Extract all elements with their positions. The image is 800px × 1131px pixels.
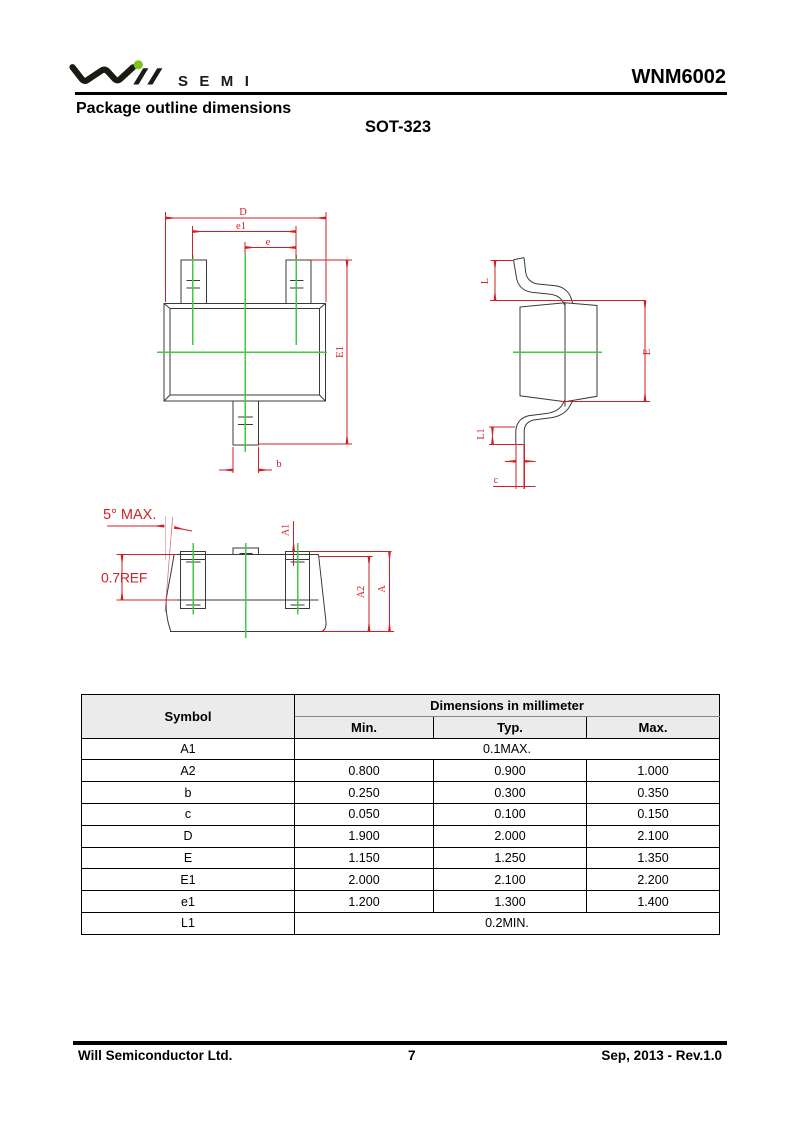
svg-text:A2: A2 <box>356 586 367 598</box>
svg-text:E: E <box>642 349 653 355</box>
svg-text:E1: E1 <box>335 346 346 358</box>
svg-text:A1: A1 <box>281 524 292 536</box>
svg-text:b: b <box>276 459 281 470</box>
svg-text:5° MAX.: 5° MAX. <box>103 507 156 523</box>
svg-text:D: D <box>239 207 247 218</box>
svg-text:e1: e1 <box>236 221 246 232</box>
svg-text:0.7REF: 0.7REF <box>101 570 147 586</box>
svg-text:L: L <box>480 278 491 284</box>
svg-text:L1: L1 <box>476 428 487 439</box>
svg-text:e: e <box>266 237 271 248</box>
svg-text:c: c <box>494 475 499 486</box>
svg-text:A: A <box>377 585 388 593</box>
